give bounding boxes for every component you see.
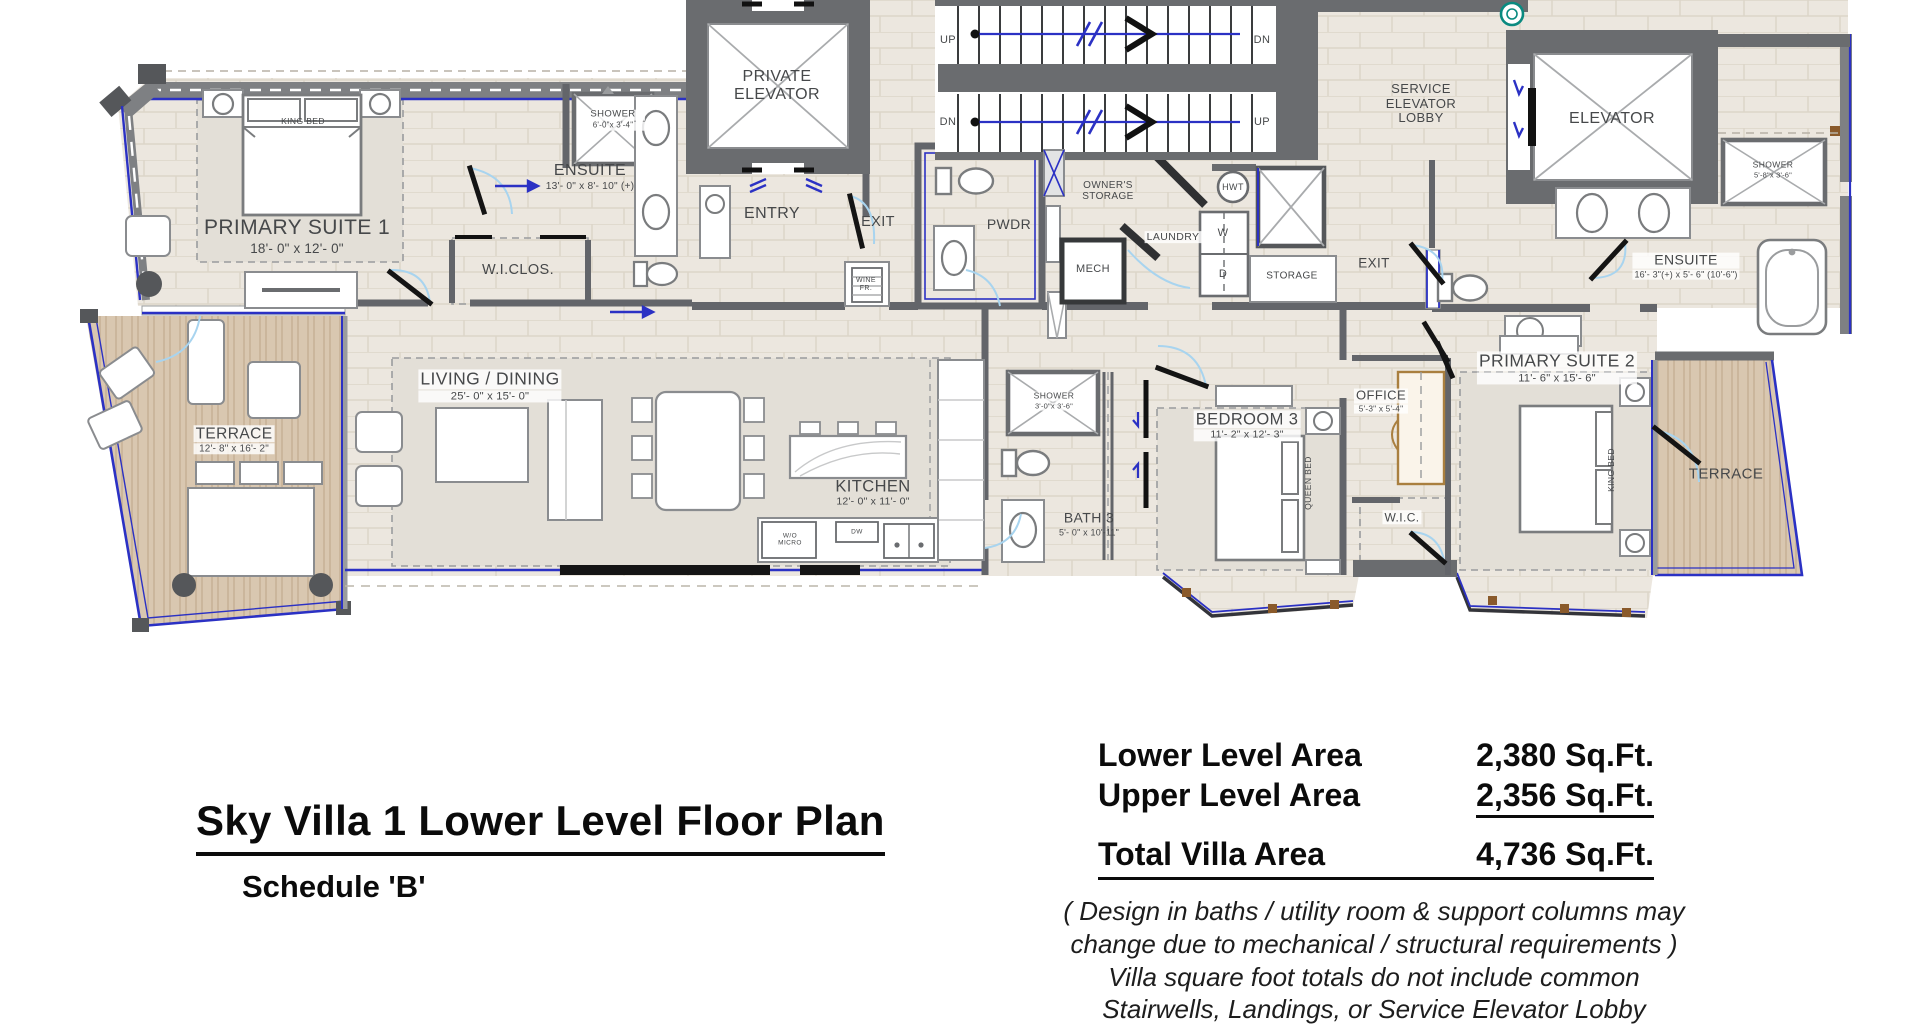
room-label-living-dining: LIVING / DINING 25'- 0" x 15'- 0" <box>418 369 561 402</box>
room-label-ensuite-1: ENSUITE 13'- 0" x 8'- 10" (+) <box>546 162 634 192</box>
room-label-entry: ENTRY <box>744 205 800 223</box>
bed-label-king-1: KING BED <box>281 117 325 127</box>
room-label-bedroom-3: BEDROOM 3 11'- 2" x 12'- 3" <box>1194 410 1301 441</box>
fixture-label-dryer: D <box>1219 268 1227 280</box>
room-label-elevator: ELEVATOR <box>1569 110 1655 128</box>
area-value-lower: 2,380 Sq.Ft. <box>1476 735 1654 775</box>
room-label-kitchen: KITCHEN 12'- 0" x 11'- 0" <box>835 477 910 508</box>
floor-plan-drawing <box>0 0 1920 650</box>
room-label-exit-right: EXIT <box>1358 255 1390 270</box>
room-label-wiclos: W.I.CLOS. <box>482 262 554 278</box>
fixture-label-wo-micro: W/O MICRO <box>771 533 809 548</box>
disclaimer-line-2: change due to mechanical / structural re… <box>1050 928 1698 961</box>
room-label-bath-3: BATH 3 5'- 0" x 10'-11" <box>1059 511 1119 538</box>
fixture-label-hwt: HWT <box>1222 182 1244 192</box>
area-value-total: 4,736 Sq.Ft. <box>1476 834 1654 874</box>
disclaimer-line-3: Villa square foot totals do not include … <box>1050 961 1698 994</box>
area-label-lower: Lower Level Area <box>1098 735 1362 775</box>
room-label-exit-left: EXIT <box>861 214 895 230</box>
disclaimer: ( Design in baths / utility room & suppo… <box>1050 895 1698 1026</box>
room-label-wic2: W.I.C. <box>1382 511 1421 524</box>
room-label-service-lobby: SERVICE ELEVATOR LOBBY <box>1365 82 1477 126</box>
bed-label-queen: QUEEN BED <box>1304 456 1314 510</box>
room-label-mech: MECH <box>1076 263 1110 275</box>
fixture-label-washer: W <box>1218 227 1229 239</box>
room-label-pwdr: PWDR <box>987 217 1031 233</box>
room-label-office: OFFICE 5'-3" x 5'-4" <box>1354 389 1408 414</box>
area-label-total: Total Villa Area <box>1098 834 1325 874</box>
room-label-primary-suite-1: PRIMARY SUITE 1 18'- 0" x 12'- 0" <box>204 216 390 256</box>
room-label-shower-1: SHOWER 6'-0"x 3'-4" <box>581 110 645 131</box>
room-label-terrace-right: TERRACE <box>1689 467 1763 484</box>
room-label-shower-tr: SHOWER 5'-8"x 3'-6" <box>1742 161 1804 180</box>
floor-plan-page: PRIMARY SUITE 1 18'- 0" x 12'- 0" KING B… <box>0 0 1920 1028</box>
bed-label-king-2: KING BED <box>1607 448 1617 492</box>
area-summary: Lower Level Area 2,380 Sq.Ft. Upper Leve… <box>1098 735 1654 1026</box>
stairs-label-up-left: UP <box>940 34 956 46</box>
title-block: Sky Villa 1 Lower Level Floor Plan Sched… <box>196 797 885 905</box>
room-label-terrace-left: TERRACE 12'- 8" x 16'- 2" <box>194 425 275 454</box>
stairs-label-up-right: UP <box>1254 116 1270 128</box>
room-label-laundry: LAUNDRY <box>1145 232 1202 244</box>
stairs-label-dn-right: DN <box>1254 34 1271 46</box>
plan-schedule: Schedule 'B' <box>242 869 885 905</box>
room-label-ensuite-2: ENSUITE 16'- 3"(+) x 5'- 6" (10'-6") <box>1632 253 1739 280</box>
area-row-total: Total Villa Area 4,736 Sq.Ft. <box>1098 834 1654 880</box>
stairs-label-dn-left: DN <box>940 116 957 128</box>
area-value-upper: 2,356 Sq.Ft. <box>1476 775 1654 818</box>
disclaimer-line-1: ( Design in baths / utility room & suppo… <box>1050 895 1698 928</box>
room-label-primary-suite-2: PRIMARY SUITE 2 11'- 6" x 15'- 6" <box>1477 351 1637 384</box>
fixture-label-wine-fridge: WINE FR. <box>851 277 881 293</box>
room-label-owners-storage: OWNER'S STORAGE <box>1069 180 1147 202</box>
room-label-private-elevator: PRIVATE ELEVATOR <box>725 68 829 104</box>
area-label-upper: Upper Level Area <box>1098 775 1360 818</box>
fixture-label-dw: DW <box>851 528 863 535</box>
area-row-upper: Upper Level Area 2,356 Sq.Ft. <box>1098 775 1654 818</box>
disclaimer-line-4: Stairwells, Landings, or Service Elevato… <box>1050 993 1698 1026</box>
floor-plan: PRIMARY SUITE 1 18'- 0" x 12'- 0" KING B… <box>0 0 1920 650</box>
room-label-storage: STORAGE <box>1266 270 1318 281</box>
area-row-lower: Lower Level Area 2,380 Sq.Ft. <box>1098 735 1654 775</box>
plan-title: Sky Villa 1 Lower Level Floor Plan <box>196 797 885 856</box>
room-label-shower-3: SHOWER 3'-0"x 3'-6" <box>1024 392 1084 411</box>
